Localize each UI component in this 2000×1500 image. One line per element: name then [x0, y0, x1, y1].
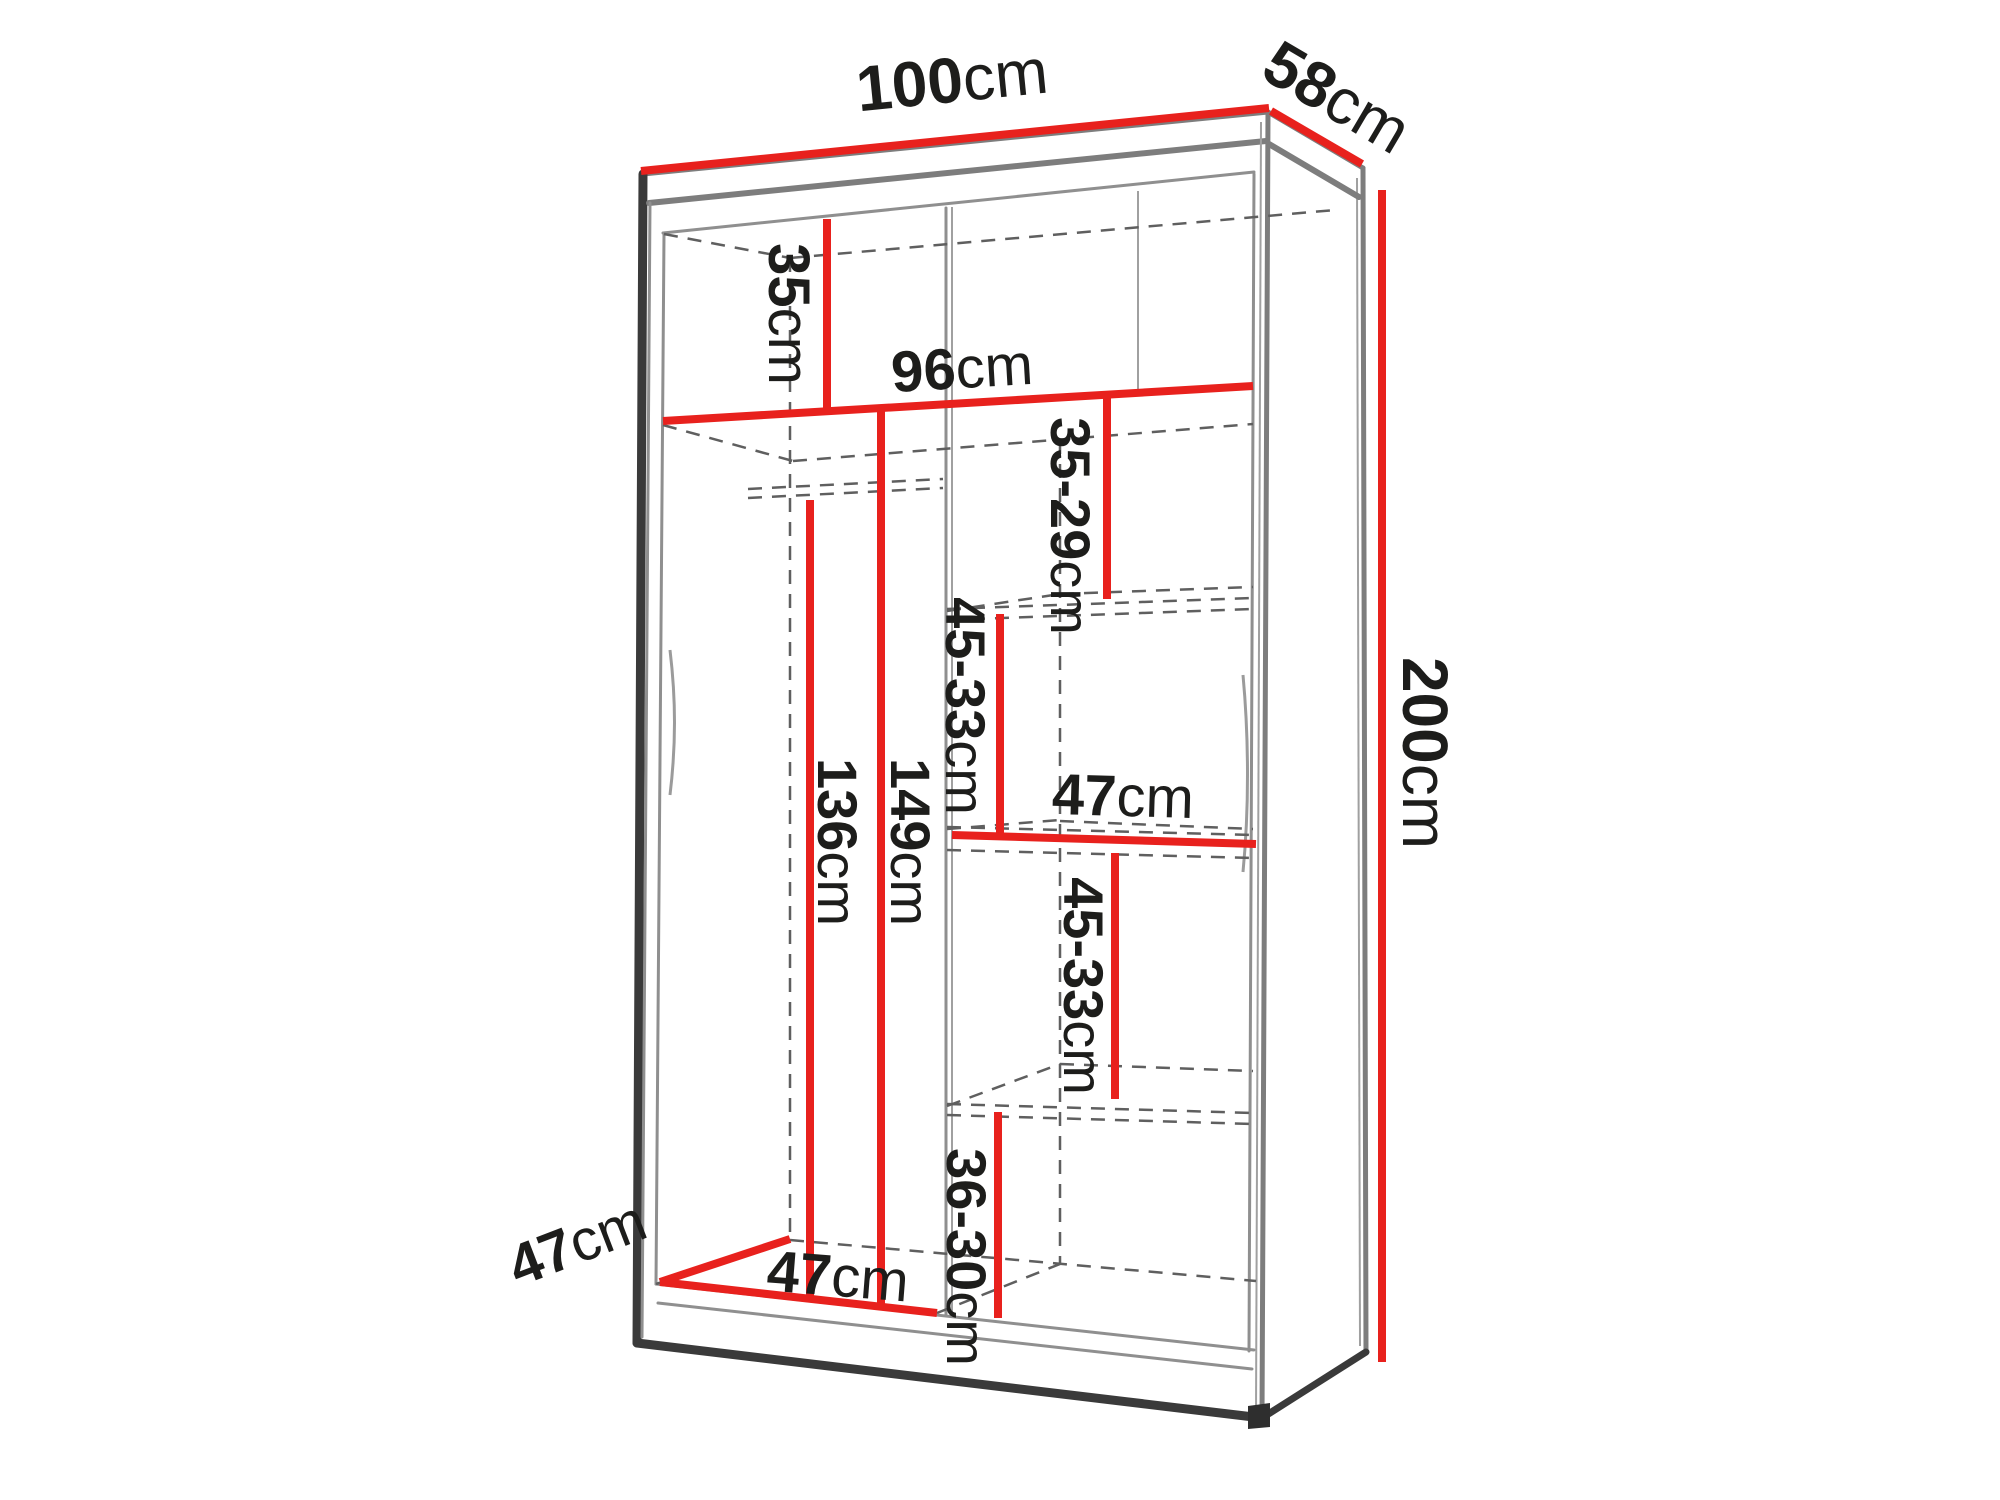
label-gap-bottom-right: 36-30cm — [936, 1148, 999, 1366]
label-overall-height-value: 200 — [1389, 657, 1461, 764]
label-gap-bottom-right-unit: cm — [936, 1291, 999, 1366]
label-gap-top-right: 35-29cm — [1040, 417, 1103, 635]
label-gap-upper-right: 45-33cm — [935, 597, 998, 815]
label-gap-lower-right-unit: cm — [1053, 1020, 1116, 1095]
label-interior-width-unit: cm — [954, 331, 1035, 400]
label-shelf-width-right: 47cm — [1051, 761, 1195, 830]
label-hanging-space-height: 136cm — [807, 758, 870, 926]
label-left-section-width-unit: cm — [829, 1243, 911, 1314]
label-gap-lower-right: 45-33cm — [1053, 877, 1116, 1095]
label-top-compartment-height: 35cm — [757, 243, 822, 385]
label-overall-height-unit: cm — [1389, 764, 1461, 849]
label-left-section-height-value: 149 — [880, 758, 943, 851]
label-left-section-height-unit: cm — [880, 851, 943, 926]
label-gap-upper-right-value: 45-33 — [935, 597, 998, 740]
label-shelf-width-right-unit: cm — [1116, 763, 1195, 830]
label-overall-width-unit: cm — [959, 35, 1051, 115]
label-gap-top-right-unit: cm — [1040, 560, 1103, 635]
side-panel-back-edge — [1363, 168, 1366, 1352]
label-overall-width: 100cm — [853, 35, 1051, 126]
label-top-compartment-height-unit: cm — [757, 308, 822, 385]
label-gap-top-right-value: 35-29 — [1040, 417, 1103, 560]
label-overall-height: 200cm — [1389, 657, 1461, 849]
label-top-compartment-height-value: 35 — [757, 243, 822, 308]
label-gap-lower-right-value: 45-33 — [1053, 877, 1116, 1020]
label-overall-width-value: 100 — [853, 43, 966, 125]
label-hanging-space-height-value: 136 — [807, 758, 870, 851]
label-hanging-space-height-unit: cm — [807, 851, 870, 926]
label-left-section-height: 149cm — [880, 758, 943, 926]
label-shelf-width-right-value: 47 — [1051, 761, 1117, 828]
label-gap-upper-right-unit: cm — [935, 740, 998, 815]
side-panel-face — [1262, 112, 1366, 1418]
wardrobe-foot — [1248, 1403, 1270, 1429]
label-left-section-width-value: 47 — [765, 1238, 834, 1308]
label-left-section-width: 47cm — [765, 1238, 912, 1314]
label-interior-depth: 47cm — [499, 1187, 655, 1299]
label-interior-width: 96cm — [889, 331, 1034, 404]
diagram-canvas: 100cm 58cm 200cm 35cm 96cm 35-29cm 45-33… — [0, 0, 2000, 1500]
wardrobe-dimension-diagram: 100cm 58cm 200cm 35cm 96cm 35-29cm 45-33… — [0, 0, 2000, 1500]
label-gap-bottom-right-value: 36-30 — [936, 1148, 999, 1291]
label-interior-width-value: 96 — [889, 336, 957, 405]
